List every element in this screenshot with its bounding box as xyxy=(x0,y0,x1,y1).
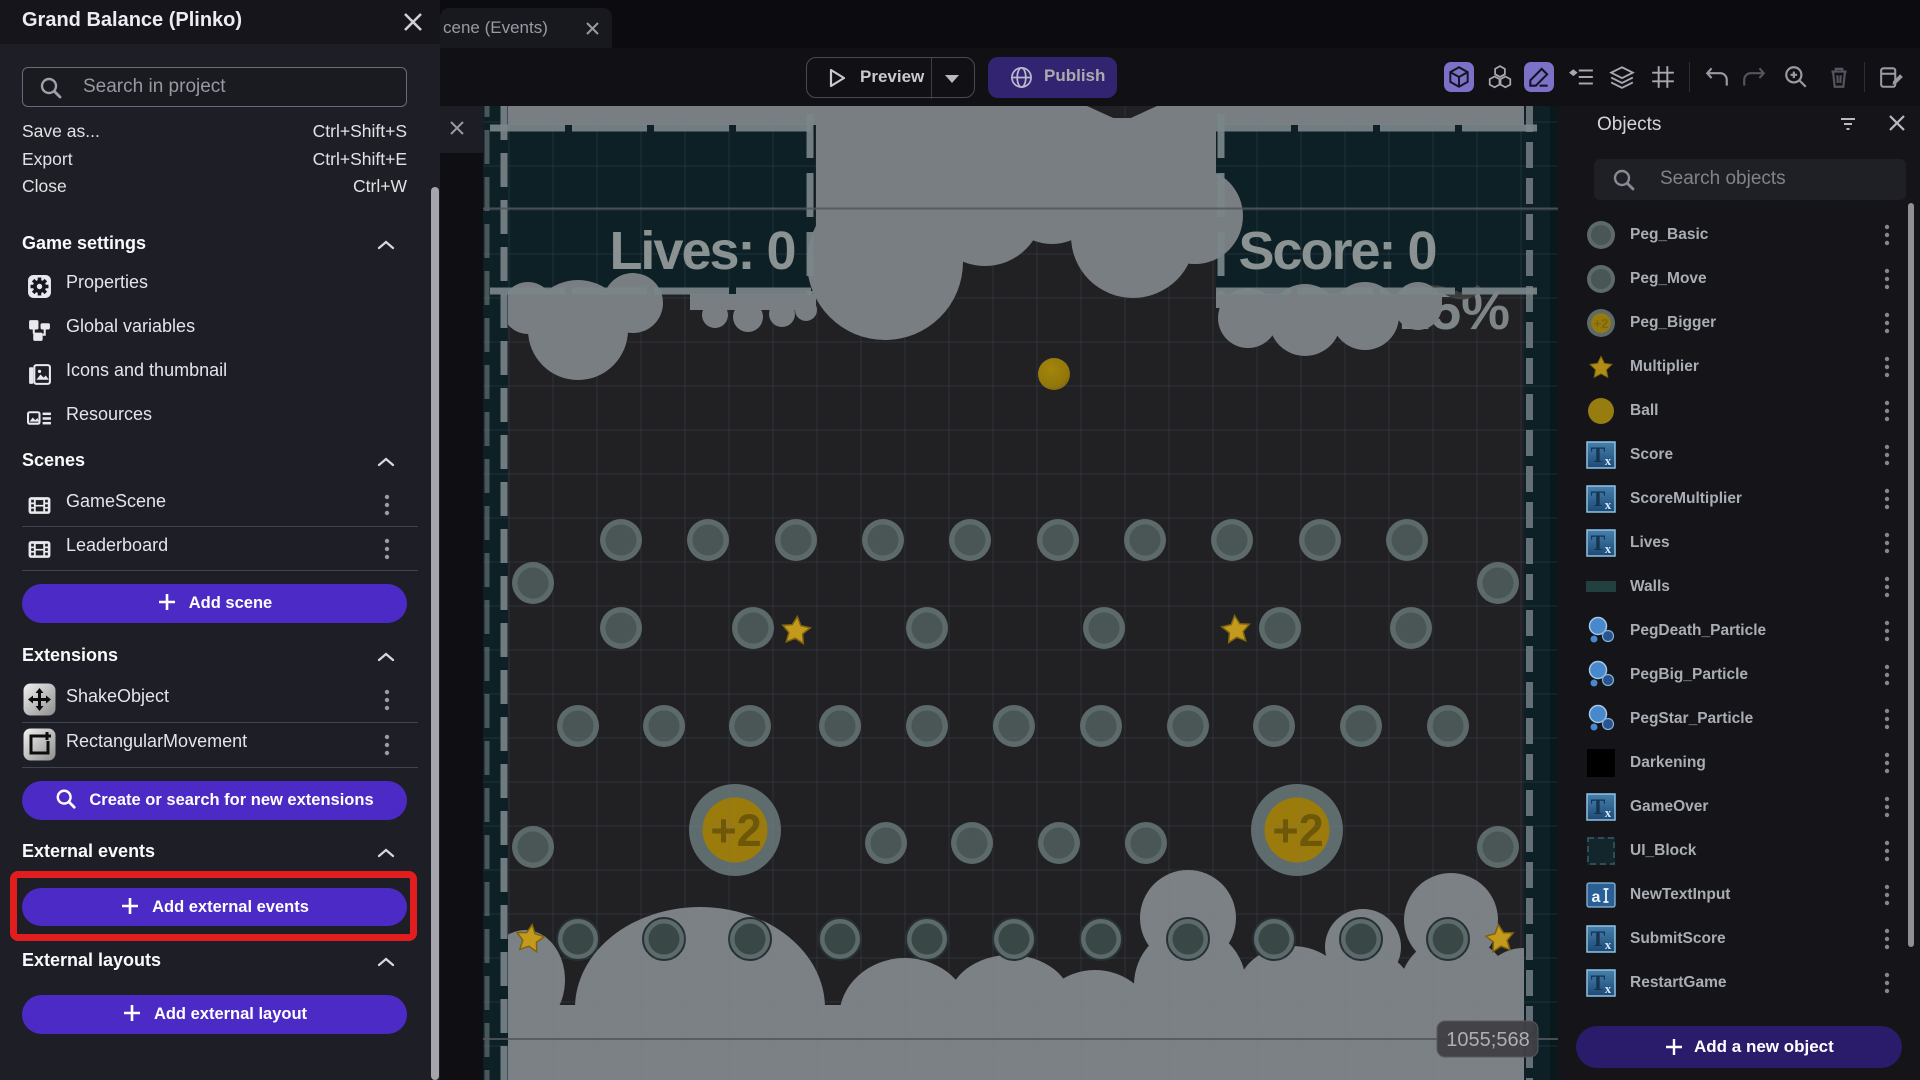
svg-text:+2: +2 xyxy=(710,805,761,856)
svg-text:x: x xyxy=(1605,981,1612,996)
svg-text:T: T xyxy=(1591,530,1606,555)
svg-text:1055;568: 1055;568 xyxy=(1446,1029,1529,1051)
svg-text:+2: +2 xyxy=(1272,805,1323,856)
svg-text:T: T xyxy=(1591,442,1606,467)
svg-text:x: x xyxy=(1605,497,1612,512)
svg-text:+2: +2 xyxy=(1594,316,1609,331)
svg-text:x: x xyxy=(1605,453,1612,468)
svg-text:Score: 0: Score: 0 xyxy=(1238,221,1435,281)
svg-text:x: x xyxy=(1605,541,1612,556)
svg-text:Lives: 0: Lives: 0 xyxy=(609,221,794,281)
svg-text:T: T xyxy=(1591,926,1606,951)
svg-text:x: x xyxy=(1605,937,1612,952)
svg-text:a: a xyxy=(1592,889,1601,906)
svg-text:x: x xyxy=(1605,805,1612,820)
svg-text:T: T xyxy=(1591,486,1606,511)
svg-text:T: T xyxy=(1591,970,1606,995)
svg-text:T: T xyxy=(1591,794,1606,819)
